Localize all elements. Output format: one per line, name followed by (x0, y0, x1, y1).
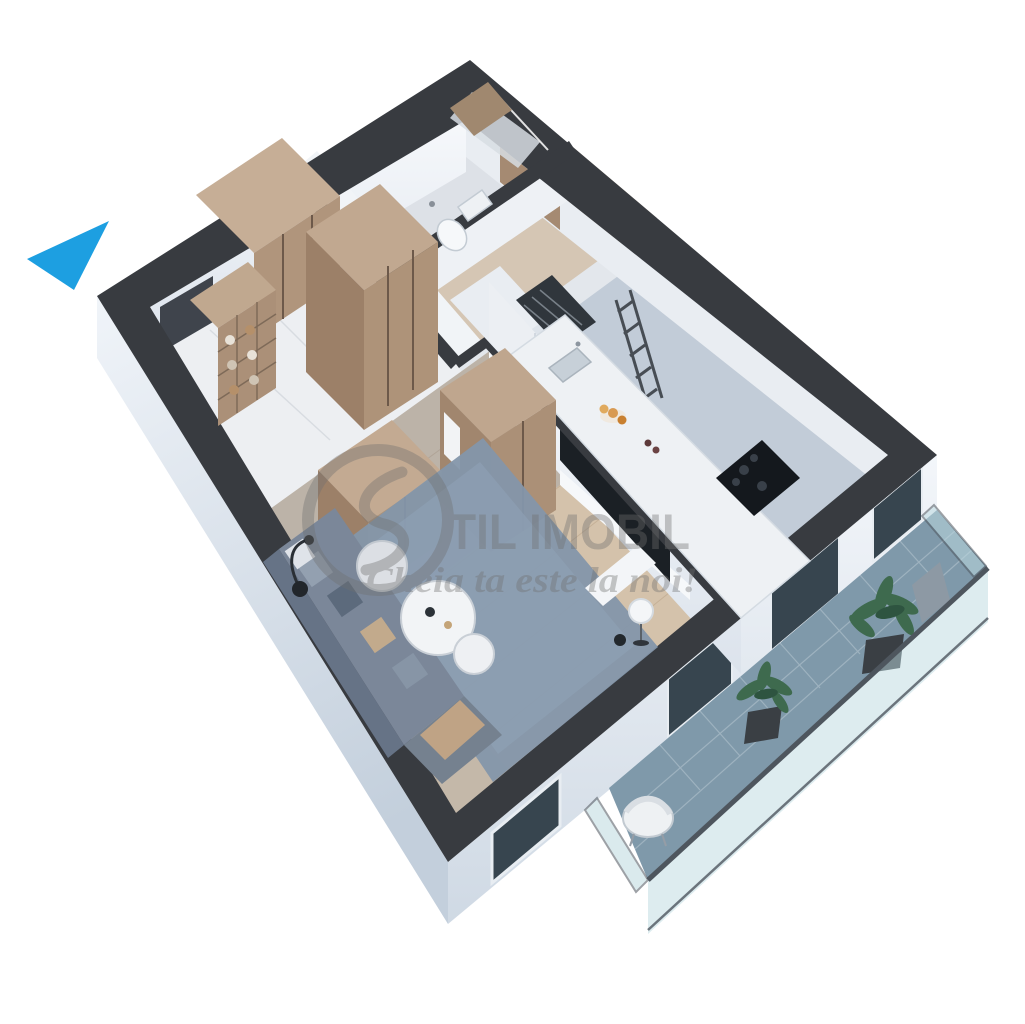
side-table (454, 634, 494, 674)
watermark-tagline: Cheia ta este la noi! (366, 560, 698, 600)
floor-plan-render: TIL IMOBIL Cheia ta este la noi! (0, 0, 1025, 1024)
toilet-paper-holder (429, 201, 435, 207)
faucet (576, 342, 581, 347)
entrance-arrow-icon (27, 221, 109, 290)
dark-vase (614, 634, 626, 646)
watermark-brand: TIL IMOBIL (448, 504, 690, 560)
sphere-lamp (629, 599, 653, 623)
floor-plan-screenshot: TIL IMOBIL Cheia ta este la noi! (0, 0, 1025, 1024)
